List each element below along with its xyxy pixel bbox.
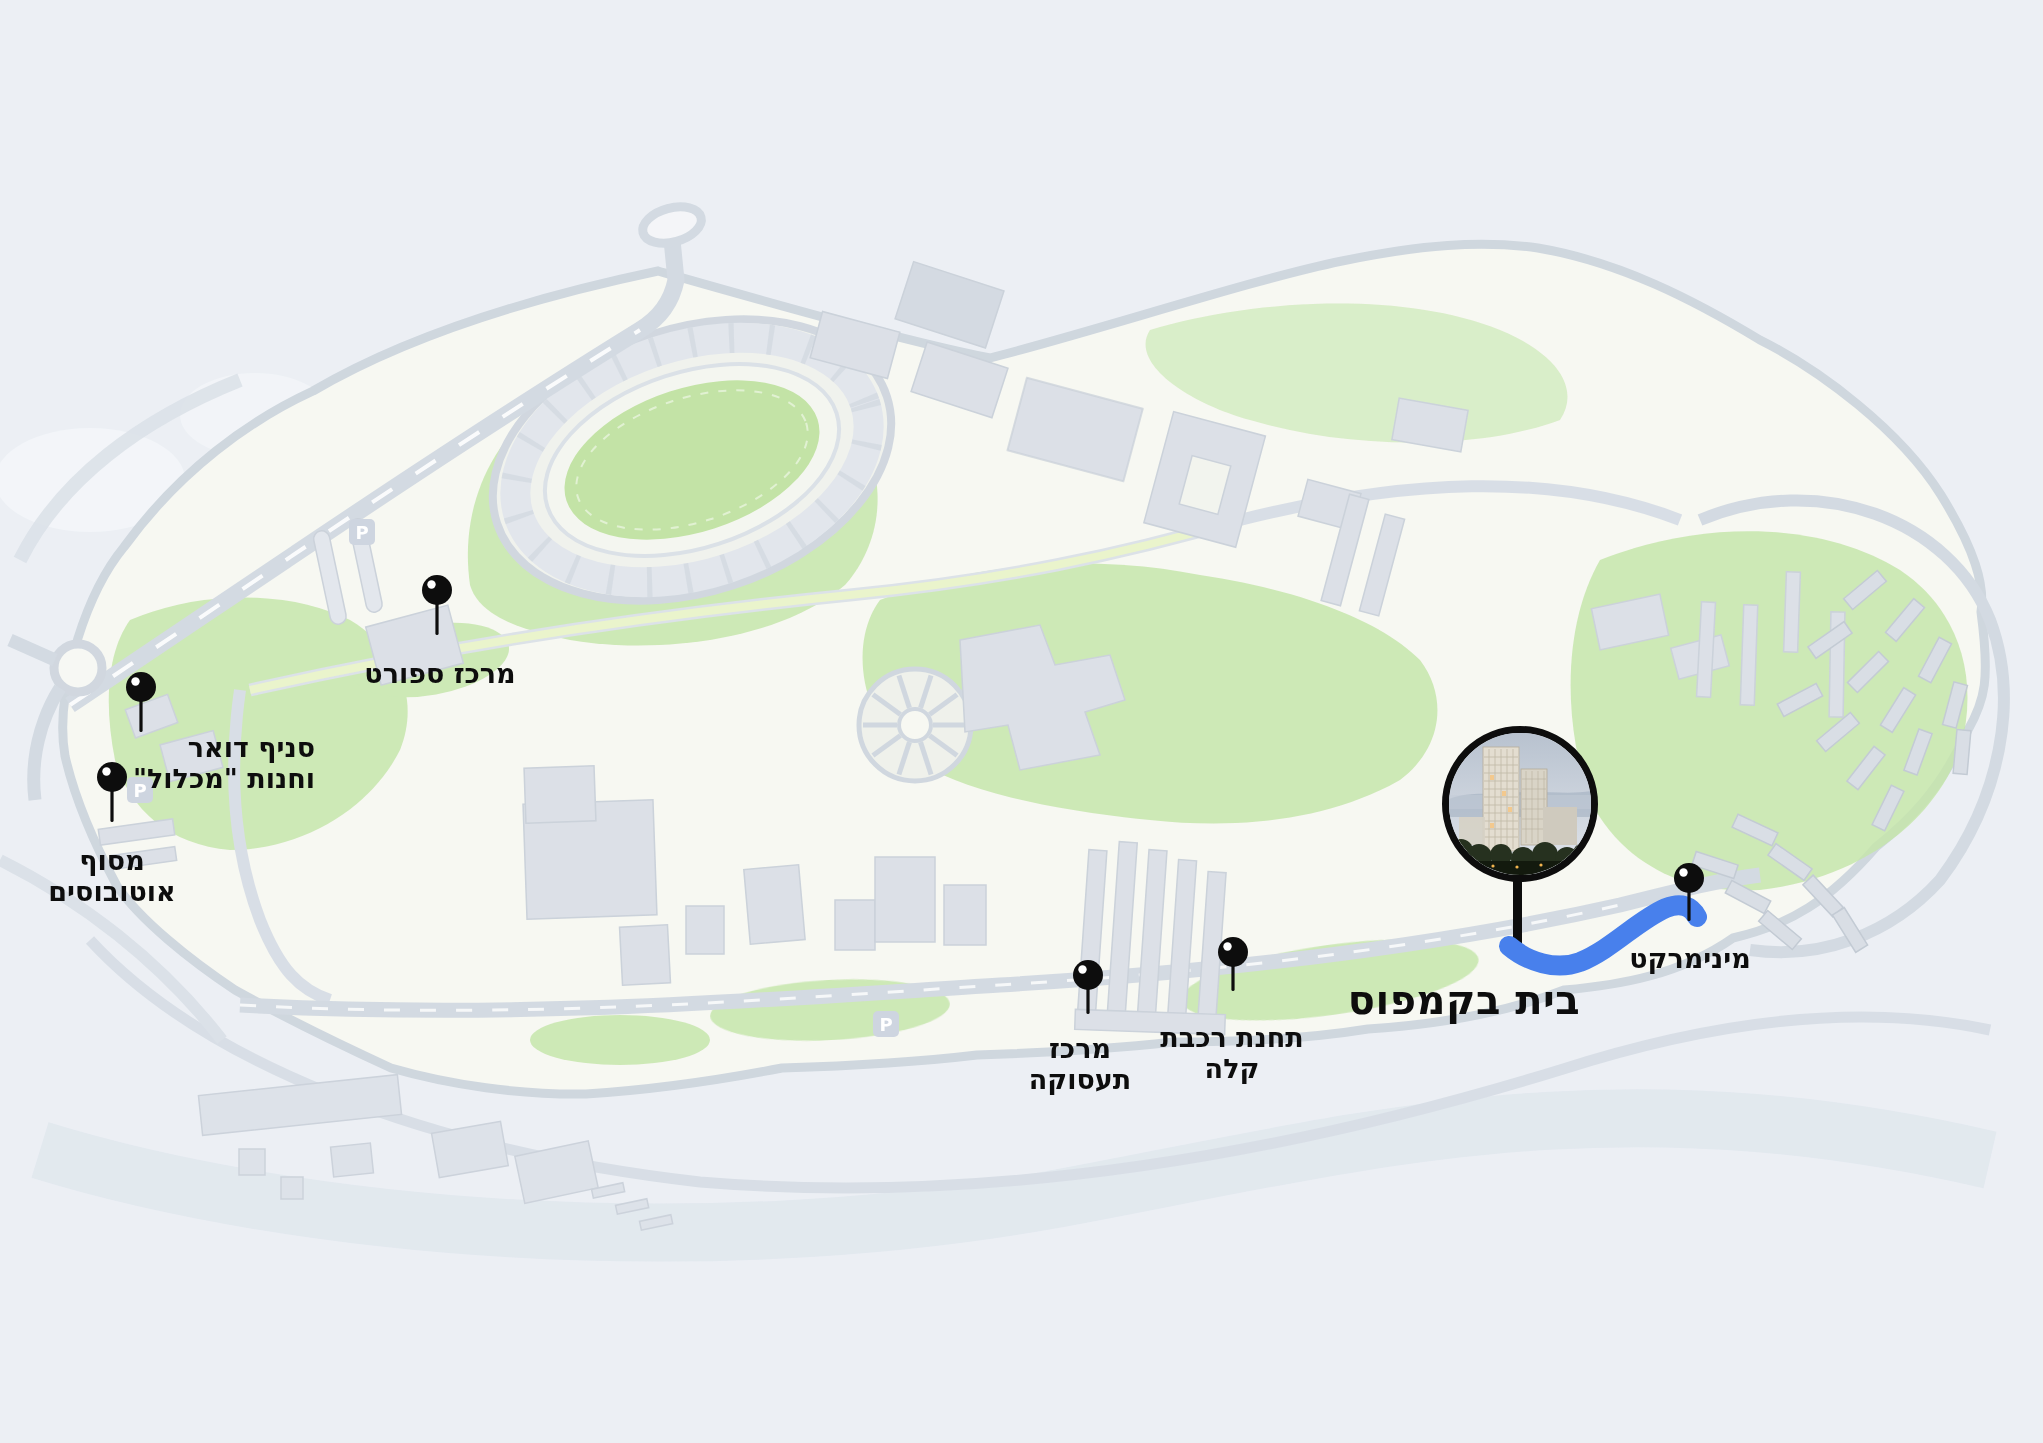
post-office-pin[interactable] — [124, 671, 158, 735]
map-pin-icon — [1216, 936, 1250, 1000]
label-line: וחנות "מכלול" — [133, 763, 315, 794]
label-line: מרכז ספורט — [364, 658, 515, 689]
bus-terminal-label: מסוף אוטובוסים — [48, 845, 175, 907]
minimarket-pin[interactable] — [1672, 862, 1706, 926]
map-wash-overlay — [0, 0, 2043, 1443]
building-photo — [1449, 733, 1591, 875]
map-pin-icon — [1672, 862, 1706, 926]
map-pin-icon — [1071, 959, 1105, 1023]
map-pin-icon — [420, 574, 454, 638]
map-illustration: P P P — [0, 0, 2043, 1443]
map-pin-icon — [124, 671, 158, 735]
employment-center-label: מרכז תעסוקה — [1029, 1033, 1131, 1095]
label-line: סניף דואר — [133, 732, 315, 763]
light-rail-label: תחנת רכבת קלה — [1160, 1022, 1304, 1084]
post-office-label: סניף דואר וחנות "מכלול" — [133, 732, 315, 794]
page-title: בית בקמפוס — [1348, 977, 1580, 1023]
label-line: קלה — [1160, 1053, 1304, 1084]
label-line: מסוף — [48, 845, 175, 876]
employment-center-pin[interactable] — [1071, 959, 1105, 1023]
building-photo-vignette[interactable] — [1442, 726, 1598, 882]
label-line: תעסוקה — [1029, 1064, 1131, 1095]
light-rail-pin[interactable] — [1216, 936, 1250, 1000]
label-line: תחנת רכבת — [1160, 1022, 1304, 1053]
campus-map: P P P — [0, 0, 2043, 1443]
label-line: אוטובוסים — [48, 876, 175, 907]
label-line: מרכז — [1029, 1033, 1131, 1064]
map-pin-icon — [95, 761, 129, 825]
sports-center-pin[interactable] — [420, 574, 454, 638]
label-line: מינימרקט — [1629, 943, 1751, 974]
minimarket-label: מינימרקט — [1629, 943, 1751, 974]
sports-center-label: מרכז ספורט — [364, 658, 515, 689]
bus-terminal-pin[interactable] — [95, 761, 129, 825]
